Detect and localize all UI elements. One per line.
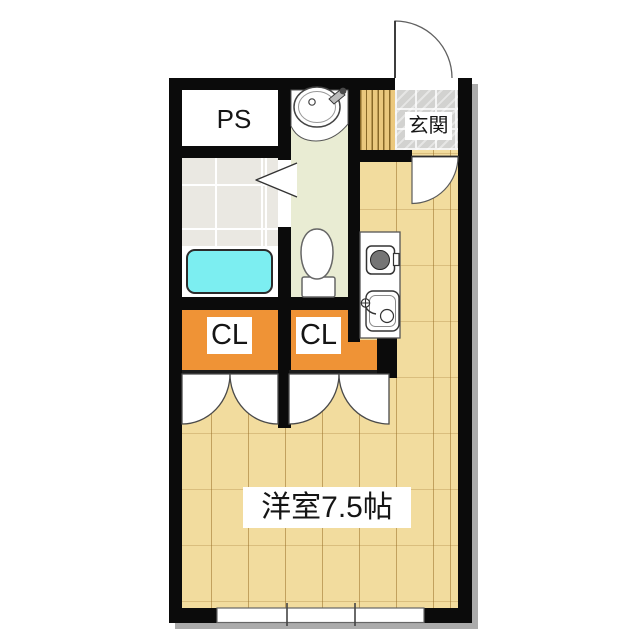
- wall-kitchen-stub: [377, 338, 397, 378]
- washroom-floor: [291, 90, 348, 297]
- ps-label: PS: [190, 92, 278, 146]
- wall-right: [458, 78, 472, 623]
- floor-plan-canvas: PS 玄関 CL CL 洋室7.5帖: [0, 0, 640, 640]
- bathroom-door-gap: [278, 160, 291, 227]
- bathroom-floor: [182, 158, 278, 246]
- closet2-label: CL: [296, 317, 341, 354]
- closet1-door-track: [182, 370, 278, 375]
- bathtub-area: [182, 246, 278, 297]
- wall-ps-bottom: [182, 146, 291, 158]
- closet2-door-track: [289, 370, 377, 375]
- entrance-door-icon: [395, 21, 452, 78]
- shoe-cabinet: [360, 90, 395, 153]
- wall-bottom-left: [169, 608, 217, 623]
- genkan-label: 玄関: [405, 112, 452, 140]
- wall-top: [169, 78, 395, 90]
- closet1-label: CL: [207, 317, 252, 354]
- closet2-extension: [348, 340, 377, 372]
- wall-bath-washroom: [278, 90, 291, 428]
- wall-left: [169, 78, 182, 623]
- main-room-label: 洋室7.5帖: [243, 487, 411, 528]
- wall-closet-top: [182, 297, 360, 310]
- wall-bottom-right: [424, 608, 472, 623]
- wall-entry-step: [348, 150, 412, 162]
